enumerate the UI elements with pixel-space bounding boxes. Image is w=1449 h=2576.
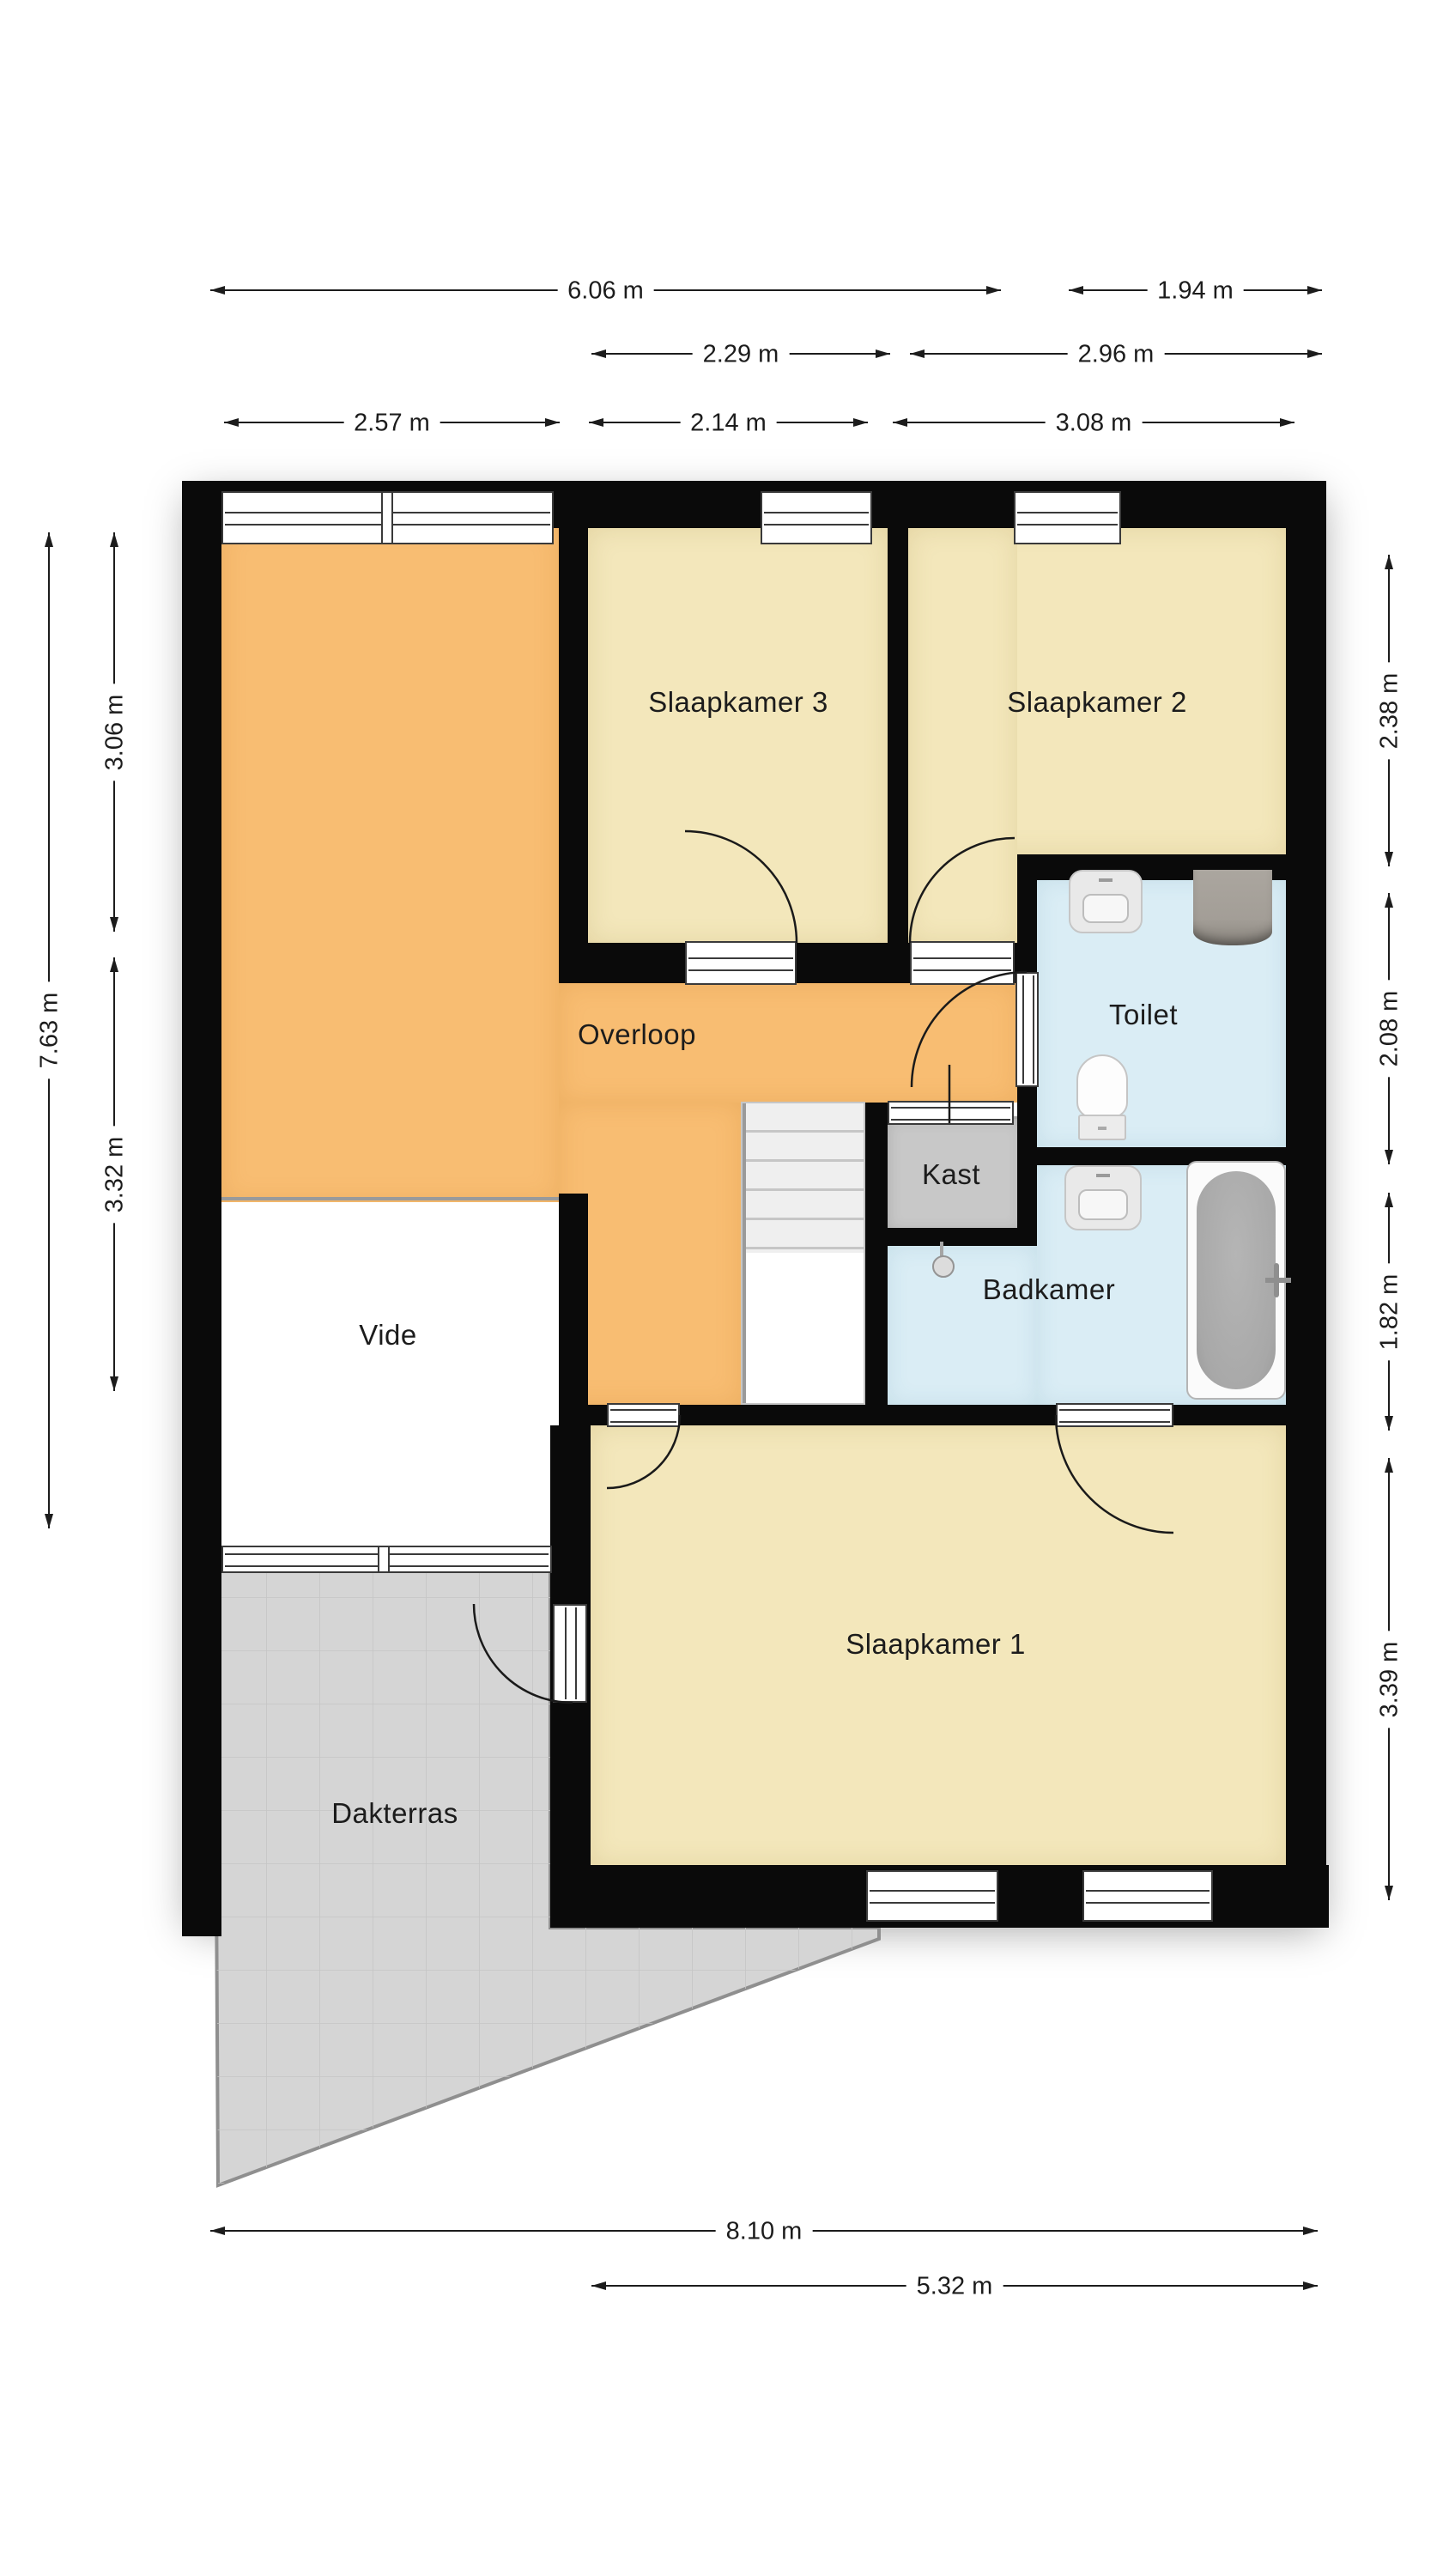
label-slaapkamer2: Slaapkamer 2	[1007, 686, 1187, 719]
label-slaapkamer1: Slaapkamer 1	[846, 1628, 1026, 1661]
dim-top-214: 2.14 m	[589, 422, 868, 423]
label-kast: Kast	[922, 1158, 980, 1191]
label-badkamer: Badkamer	[983, 1273, 1115, 1306]
dim-top-194: 1.94 m	[1069, 289, 1322, 291]
dim-left-763: 7.63 m	[48, 532, 50, 1528]
dim-left-306: 3.06 m	[113, 532, 115, 932]
label-slaapkamer3: Slaapkamer 3	[648, 686, 828, 719]
label-overloop: Overloop	[578, 1018, 696, 1051]
dim-top-606: 6.06 m	[210, 289, 1001, 291]
dim-top-308: 3.08 m	[893, 422, 1294, 423]
floorplan: Slaapkamer 3 Slaapkamer 2 Toilet Overloo…	[0, 0, 1449, 2576]
dim-right-339: 3.39 m	[1388, 1458, 1390, 1900]
door-swing-arcs	[0, 0, 1449, 2576]
label-dakterras: Dakterras	[331, 1797, 458, 1830]
label-toilet: Toilet	[1109, 999, 1178, 1031]
dim-top-296: 2.96 m	[910, 353, 1322, 355]
dim-bottom-532: 5.32 m	[591, 2285, 1318, 2287]
dim-left-332: 3.32 m	[113, 957, 115, 1391]
dim-top-257: 2.57 m	[224, 422, 560, 423]
dim-bottom-810: 8.10 m	[210, 2230, 1318, 2232]
dim-right-208: 2.08 m	[1388, 893, 1390, 1164]
label-vide: Vide	[359, 1319, 416, 1352]
dim-top-229: 2.29 m	[591, 353, 890, 355]
dim-right-238: 2.38 m	[1388, 555, 1390, 866]
dim-right-182: 1.82 m	[1388, 1193, 1390, 1431]
